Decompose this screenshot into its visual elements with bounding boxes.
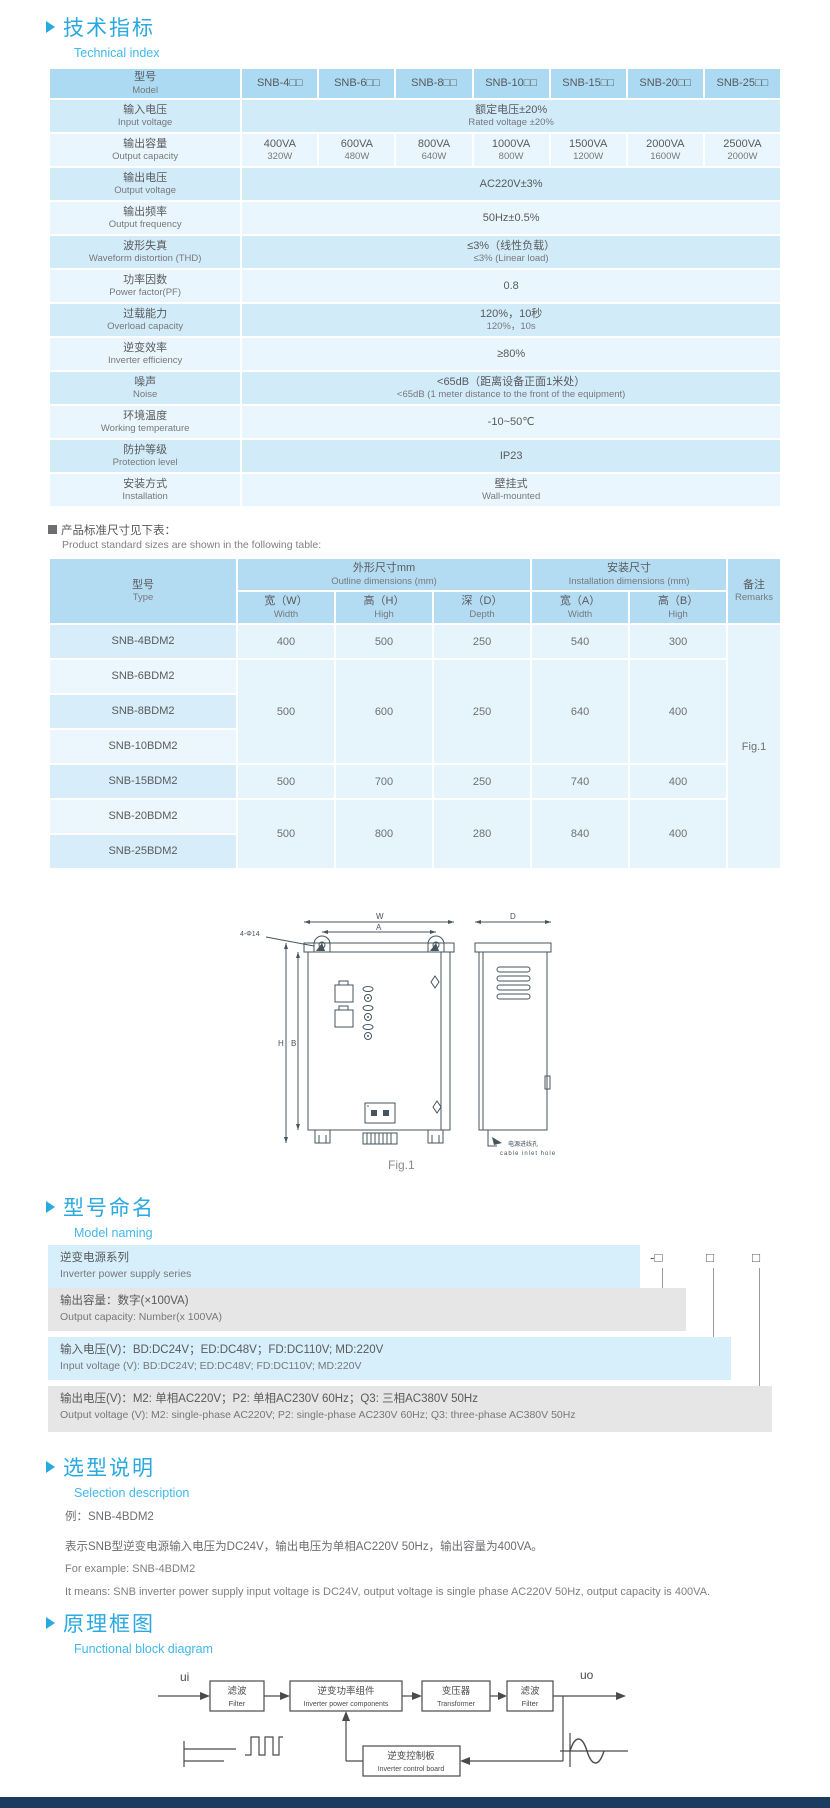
size-row-type: SNB-20BDM2	[50, 800, 236, 833]
input-signal-label: ui	[180, 1670, 189, 1684]
size-header-dim-col: 宽（W）Width	[238, 592, 334, 623]
table-row: 输出频率Output frequency50Hz±0.5%	[50, 202, 780, 234]
svg-text:Filter: Filter	[522, 1699, 539, 1708]
section-title-en: Technical index	[74, 46, 159, 60]
dc-signal-icon	[184, 1741, 236, 1767]
cell-text-zh: 120%，10秒	[244, 307, 778, 321]
size-remark-cell: Fig.1	[728, 625, 780, 868]
section-title-en: Selection description	[74, 1486, 189, 1500]
cell-text-en: Outline dimensions (mm)	[240, 576, 528, 588]
size-header-row-1: 型号Type外形尺寸mmOutline dimensions (mm)安装尺寸I…	[50, 559, 780, 590]
section-arrow-icon	[46, 21, 55, 33]
svg-text:逆变功率组件: 逆变功率组件	[317, 1685, 375, 1697]
cell-text-en: Remarks	[730, 592, 778, 604]
cell-text-en: Inverter efficiency	[52, 355, 238, 367]
cell-text-zh: 备注	[730, 578, 778, 592]
cell-text-en: Model	[52, 85, 238, 97]
size-header-dim-col: 深（D）Depth	[434, 592, 530, 623]
svg-text:Filter: Filter	[229, 1699, 246, 1708]
spec-row-label: 输入电压Input voltage	[50, 100, 240, 132]
size-dim-cell: 840	[532, 800, 628, 868]
cell-text-zh: 深（D）	[436, 594, 528, 608]
cell-text-en: Output frequency	[52, 219, 238, 231]
cell-text-zh: 输出容量	[52, 137, 238, 151]
table-row: 防护等级Protection levelIP23	[50, 440, 780, 472]
size-row-type: SNB-6BDM2	[50, 660, 236, 693]
cell-text-en: Output voltage	[52, 185, 238, 197]
size-dim-cell: 500	[238, 660, 334, 763]
cell-text-en: Power factor(PF)	[52, 287, 238, 299]
cell-text-en: Wall-mounted	[244, 491, 778, 503]
size-dim-cell: 500	[238, 765, 334, 798]
section-title-zh: 选型说明	[63, 1452, 155, 1482]
svg-text:滤波: 滤波	[520, 1685, 540, 1697]
spec-row-label: 环境温度Working temperature	[50, 406, 240, 438]
spec-value-span: -10~50℃	[242, 406, 780, 438]
size-row-type: SNB-25BDM2	[50, 835, 236, 868]
naming-bar-output-voltage: 输出电压(V)：M2: 单相AC220V；P2: 单相AC230V 60Hz；Q…	[48, 1386, 772, 1432]
cell-text-zh: 额定电压±20%	[244, 103, 778, 117]
size-dim-cell: 280	[434, 800, 530, 868]
spec-value-span: <65dB（距离设备正面1米处）<65dB (1 meter distance …	[242, 372, 780, 404]
cell-text-en: High	[338, 609, 430, 621]
spec-row-label: 波形失真Waveform distortion (THD)	[50, 236, 240, 268]
cell-text-en: Noise	[52, 389, 238, 401]
size-dim-cell: 600	[336, 660, 432, 763]
cell-text-zh: 功率因数	[52, 273, 238, 287]
dim-h-label: H	[278, 1039, 284, 1048]
svg-text:变压器: 变压器	[442, 1685, 471, 1697]
dim-d-label: D	[510, 912, 516, 921]
table-row: 噪声Noise<65dB（距离设备正面1米处）<65dB (1 meter di…	[50, 372, 780, 404]
cell-text-en: Type	[52, 592, 234, 604]
size-note-en: Product standard sizes are shown in the …	[62, 539, 321, 551]
spec-row-label: 安装方式Installation	[50, 474, 240, 506]
spec-row-label: 防护等级Protection level	[50, 440, 240, 472]
cell-text-zh: 600VA	[321, 137, 392, 151]
holes-label: 4-Φ14	[240, 931, 260, 938]
cell-text-zh: 输出频率	[52, 205, 238, 219]
svg-text:滤波: 滤波	[227, 1685, 247, 1697]
naming-bar-series: 逆变电源系列 Inverter power supply series	[48, 1245, 640, 1288]
size-header-type: 型号Type	[50, 559, 236, 623]
dim-w-label: W	[376, 912, 384, 921]
naming-bar-input-voltage: 输入电压(V)：BD:DC24V；ED:DC48V；FD:DC110V; MD:…	[48, 1337, 731, 1380]
cell-text-zh: 宽（A）	[534, 594, 626, 608]
cell-text-zh: 400VA	[244, 137, 315, 151]
cell-text-en: <65dB (1 meter distance to the front of …	[244, 389, 778, 401]
spec-value-span: ≥80%	[242, 338, 780, 370]
size-row-type: SNB-4BDM2	[50, 625, 236, 658]
size-dim-cell: 300	[630, 625, 726, 658]
table-row: SNB-20BDM2500800280840400	[50, 800, 780, 833]
spec-header-model-col: SNB-25□□	[705, 69, 780, 98]
sine-wave-icon	[560, 1733, 628, 1767]
cell-text-en: 1600W	[630, 151, 701, 163]
spec-row-label: 过载能力Overload capacity	[50, 304, 240, 336]
spec-row-label: 输出电压Output voltage	[50, 168, 240, 200]
model-name: SNB-15□□	[553, 76, 624, 90]
size-dim-cell: 250	[434, 765, 530, 798]
table-row: SNB-6BDM2500600250640400	[50, 660, 780, 693]
spec-header-model-col: SNB-4□□	[242, 69, 317, 98]
selection-desc-en: It means: SNB inverter power supply inpu…	[65, 1586, 710, 1598]
size-header-install: 安装尺寸Installation dimensions (mm)	[532, 559, 726, 590]
cable-inlet-label-en: cable inlet hole	[500, 1151, 556, 1157]
size-header-outline: 外形尺寸mmOutline dimensions (mm)	[238, 559, 530, 590]
square-bullet-icon	[48, 525, 57, 534]
spec-value-span: ≤3%（线性负载）≤3% (Linear load)	[242, 236, 780, 268]
cell-text-zh: AC220V±3%	[244, 177, 778, 191]
section-title-zh: 技术指标	[63, 12, 155, 42]
spec-row-label: 功率因数Power factor(PF)	[50, 270, 240, 302]
spec-header-model-col: SNB-6□□	[319, 69, 394, 98]
cell-text-zh: 防护等级	[52, 443, 238, 457]
size-row-type: SNB-8BDM2	[50, 695, 236, 728]
size-dim-cell: 540	[532, 625, 628, 658]
cell-text-zh: 50Hz±0.5%	[244, 211, 778, 225]
cell-text-en: Waveform distortion (THD)	[52, 253, 238, 265]
spec-header-model-col: SNB-20□□	[628, 69, 703, 98]
spec-row-label: 输出频率Output frequency	[50, 202, 240, 234]
size-dim-cell: 700	[336, 765, 432, 798]
model-name: SNB-25□□	[707, 76, 778, 90]
cell-text-zh: 2500VA	[707, 137, 778, 151]
cell-text-en: Width	[534, 609, 626, 621]
model-code-output-voltage: □	[752, 1250, 760, 1265]
size-note-zh: 产品标准尺寸见下表：	[48, 522, 176, 538]
spec-header-model: 型号Model	[50, 69, 240, 98]
spec-value-cell: 600VA480W	[319, 134, 394, 166]
square-wave-icon	[245, 1737, 283, 1755]
cell-text-en: 800W	[476, 151, 547, 163]
size-dim-cell: 500	[336, 625, 432, 658]
size-dim-cell: 400	[630, 765, 726, 798]
spec-value-span: IP23	[242, 440, 780, 472]
cell-text-zh: 安装尺寸	[534, 561, 724, 575]
table-row: SNB-4BDM2400500250540300Fig.1	[50, 625, 780, 658]
cell-text-zh: 噪声	[52, 375, 238, 389]
cell-text-en: 320W	[244, 151, 315, 163]
model-name: SNB-4□□	[244, 76, 315, 90]
cell-text-zh: 0.8	[244, 279, 778, 293]
spec-value-span: 120%，10秒120%，10s	[242, 304, 780, 336]
section-selection-description: 选型说明 Selection description	[46, 1452, 189, 1500]
cell-text-en: 120%，10s	[244, 321, 778, 333]
table-row: 输出容量Output capacity400VA320W600VA480W800…	[50, 134, 780, 166]
spec-value-cell: 2000VA1600W	[628, 134, 703, 166]
section-title-en: Functional block diagram	[74, 1642, 213, 1656]
size-header-remarks: 备注Remarks	[728, 559, 780, 623]
model-name: SNB-20□□	[630, 76, 701, 90]
side-view: D 电源进线孔 cable inlet hole	[475, 912, 556, 1157]
size-dim-cell: 740	[532, 765, 628, 798]
spec-value-span: AC220V±3%	[242, 168, 780, 200]
size-header-dim-col: 宽（A）Width	[532, 592, 628, 623]
table-row: 功率因数Power factor(PF)0.8	[50, 270, 780, 302]
spec-value-span: 壁挂式Wall-mounted	[242, 474, 780, 506]
code-connector-line	[662, 1268, 663, 1288]
block-diagram-svg: ui 滤波 Filter 逆变功率组件 Inverter power compo…	[150, 1663, 690, 1798]
cell-text-en: 480W	[321, 151, 392, 163]
datasheet-page: 技术指标 Technical index 型号ModelSNB-4□□SNB-6…	[0, 0, 830, 1808]
table-row: 波形失真Waveform distortion (THD)≤3%（线性负载）≤3…	[50, 236, 780, 268]
dimension-table: 型号Type外形尺寸mmOutline dimensions (mm)安装尺寸I…	[48, 557, 782, 870]
svg-text:Inverter power components: Inverter power components	[304, 1701, 389, 1708]
section-arrow-icon	[46, 1201, 55, 1213]
cell-text-en: Overload capacity	[52, 321, 238, 333]
spec-row-label: 噪声Noise	[50, 372, 240, 404]
model-name: SNB-10□□	[476, 76, 547, 90]
cell-text-zh: 宽（W）	[240, 594, 332, 608]
size-row-type: SNB-15BDM2	[50, 765, 236, 798]
spec-header-model-col: SNB-10□□	[474, 69, 549, 98]
size-dim-cell: 400	[630, 660, 726, 763]
section-title-en: Model naming	[74, 1226, 155, 1240]
cell-text-zh: <65dB（距离设备正面1米处）	[244, 375, 778, 389]
cell-text-zh: 壁挂式	[244, 477, 778, 491]
section-technical-index: 技术指标 Technical index	[46, 12, 159, 60]
cell-text-zh: 输出电压	[52, 171, 238, 185]
section-title-zh: 原理框图	[63, 1608, 155, 1638]
cell-text-en: Depth	[436, 609, 528, 621]
section-title-zh: 型号命名	[63, 1192, 155, 1222]
spec-value-span: 0.8	[242, 270, 780, 302]
model-code-capacity: -□	[650, 1250, 663, 1265]
selection-desc-zh: 表示SNB型逆变电源输入电压为DC24V，输出电压为单相AC220V 50Hz，…	[65, 1538, 543, 1554]
cell-text-zh: 800VA	[398, 137, 469, 151]
cell-text-zh: -10~50℃	[244, 415, 778, 429]
size-header-dim-col: 高（H）High	[336, 592, 432, 623]
size-dim-cell: 800	[336, 800, 432, 868]
spec-header-model-col: SNB-15□□	[551, 69, 626, 98]
cell-text-en: 640W	[398, 151, 469, 163]
dim-b-label: B	[291, 1039, 296, 1048]
section-block-diagram: 原理框图 Functional block diagram	[46, 1608, 213, 1656]
spec-header-row: 型号ModelSNB-4□□SNB-6□□SNB-8□□SNB-10□□SNB-…	[50, 69, 780, 98]
section-arrow-icon	[46, 1617, 55, 1629]
size-row-type: SNB-10BDM2	[50, 730, 236, 763]
cell-text-zh: 1500VA	[553, 137, 624, 151]
table-row: 安装方式Installation壁挂式Wall-mounted	[50, 474, 780, 506]
output-signal-label: uo	[580, 1668, 594, 1682]
svg-text:逆变控制板: 逆变控制板	[387, 1750, 435, 1762]
code-connector-line	[759, 1268, 760, 1386]
dim-a-label: A	[376, 923, 382, 932]
spec-value-cell: 1000VA800W	[474, 134, 549, 166]
spec-value-span: 额定电压±20%Rated voltage ±20%	[242, 100, 780, 132]
spec-header-model-col: SNB-8□□	[396, 69, 471, 98]
cell-text-en: Rated voltage ±20%	[244, 117, 778, 129]
technical-drawing: W A 4-Φ14 H	[240, 905, 580, 1180]
cell-text-en: Installation dimensions (mm)	[534, 576, 724, 588]
table-row: 输入电压Input voltage额定电压±20%Rated voltage ±…	[50, 100, 780, 132]
cell-text-zh: 过载能力	[52, 307, 238, 321]
code-connector-line	[713, 1268, 714, 1337]
cell-text-zh: 1000VA	[476, 137, 547, 151]
size-dim-cell: 400	[238, 625, 334, 658]
svg-text:Inverter control board: Inverter control board	[378, 1766, 445, 1773]
cell-text-zh: 逆变效率	[52, 341, 238, 355]
section-arrow-icon	[46, 1461, 55, 1473]
table-row: 环境温度Working temperature-10~50℃	[50, 406, 780, 438]
spec-value-span: 50Hz±0.5%	[242, 202, 780, 234]
table-row: 过载能力Overload capacity120%，10秒120%，10s	[50, 304, 780, 336]
cell-text-en: Input voltage	[52, 117, 238, 129]
table-row: SNB-15BDM2500700250740400	[50, 765, 780, 798]
table-row: 输出电压Output voltageAC220V±3%	[50, 168, 780, 200]
spec-row-label: 输出容量Output capacity	[50, 134, 240, 166]
size-dim-cell: 250	[434, 625, 530, 658]
svg-text:Transformer: Transformer	[437, 1701, 476, 1708]
cell-text-zh: 型号	[52, 578, 234, 592]
cell-text-zh: IP23	[244, 449, 778, 463]
size-header-dim-col: 高（B）High	[630, 592, 726, 623]
cell-text-zh: ≤3%（线性负载）	[244, 239, 778, 253]
section-model-naming: 型号命名 Model naming	[46, 1192, 155, 1240]
cell-text-zh: 型号	[52, 70, 238, 84]
cell-text-zh: 输入电压	[52, 103, 238, 117]
cell-text-en: Installation	[52, 491, 238, 503]
cell-text-en: 2000W	[707, 151, 778, 163]
naming-bar-capacity: 输出容量：数字(×100VA) Output capacity: Number(…	[48, 1288, 686, 1331]
footer-bar	[0, 1797, 830, 1808]
cell-text-en: ≤3% (Linear load)	[244, 253, 778, 265]
cell-text-en: Width	[240, 609, 332, 621]
spec-value-cell: 800VA640W	[396, 134, 471, 166]
cell-text-en: High	[632, 609, 724, 621]
model-code-input-voltage: □	[706, 1250, 714, 1265]
spec-value-cell: 1500VA1200W	[551, 134, 626, 166]
technical-spec-table: 型号ModelSNB-4□□SNB-6□□SNB-8□□SNB-10□□SNB-…	[48, 67, 782, 508]
cell-text-zh: 波形失真	[52, 239, 238, 253]
cell-text-zh: ≥80%	[244, 347, 778, 361]
spec-row-label: 逆变效率Inverter efficiency	[50, 338, 240, 370]
cable-inlet-label-zh: 电源进线孔	[508, 1140, 538, 1148]
size-dim-cell: 500	[238, 800, 334, 868]
cell-text-en: Working temperature	[52, 423, 238, 435]
size-dim-cell: 640	[532, 660, 628, 763]
spec-value-cell: 400VA320W	[242, 134, 317, 166]
fig-caption: Fig.1	[388, 1158, 415, 1172]
cell-text-en: Protection level	[52, 457, 238, 469]
front-view: W A 4-Φ14 H	[240, 912, 454, 1144]
size-dim-cell: 250	[434, 660, 530, 763]
cell-text-en: Output capacity	[52, 151, 238, 163]
table-row: 逆变效率Inverter efficiency≥80%	[50, 338, 780, 370]
selection-example-zh: 例：SNB-4BDM2	[65, 1508, 154, 1524]
cell-text-zh: 环境温度	[52, 409, 238, 423]
cell-text-zh: 外形尺寸mm	[240, 561, 528, 575]
cell-text-en: 1200W	[553, 151, 624, 163]
cell-text-zh: 安装方式	[52, 477, 238, 491]
spec-value-cell: 2500VA2000W	[705, 134, 780, 166]
model-name: SNB-6□□	[321, 76, 392, 90]
size-dim-cell: 400	[630, 800, 726, 868]
model-name: SNB-8□□	[398, 76, 469, 90]
cell-text-zh: 2000VA	[630, 137, 701, 151]
cell-text-zh: 高（B）	[632, 594, 724, 608]
cell-text-zh: 高（H）	[338, 594, 430, 608]
selection-example-en: For example: SNB-4BDM2	[65, 1563, 195, 1575]
